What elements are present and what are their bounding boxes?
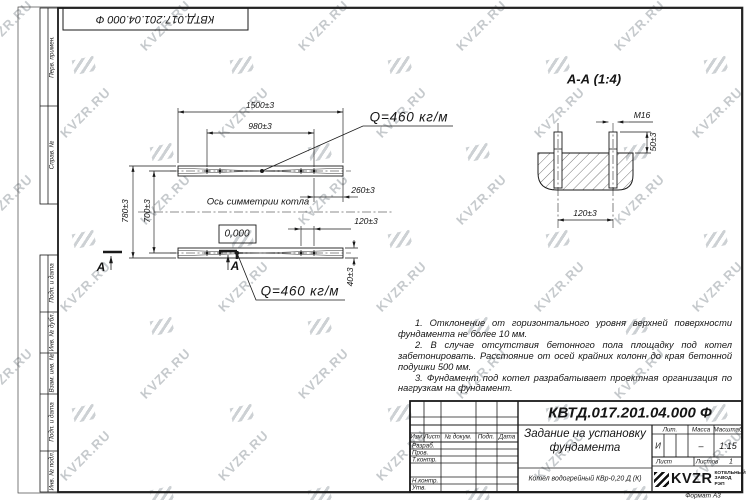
margin-label-podp-data-1: Подп. и дата <box>49 263 56 302</box>
col-header-podp: Подп. <box>478 434 494 441</box>
dimension-label-40: 40±3 <box>345 268 355 287</box>
dimension-label-120-section: 120±3 <box>573 208 597 218</box>
note-1: 1. Отклонение от горизонтального уровня … <box>398 318 732 340</box>
col-header-doc: № докум. <box>444 434 471 441</box>
title-block-doc-number: КВТД.017.201.04.000 Ф <box>548 405 711 422</box>
bolt-thread-label: М16 <box>634 110 651 120</box>
kvzr-logo-subtext: КОТЕЛЬНЫЙ ЗАВОД РЭП <box>714 471 742 487</box>
note-3: 3. Фундамент под котел разрабатывает про… <box>398 373 732 395</box>
dimension-label-980: 980±3 <box>248 121 272 131</box>
drawing-notes: 1. Отклонение от горизонтального уровня … <box>398 318 732 394</box>
dimension-label-50: 50±3 <box>648 133 658 152</box>
dimension-label-780: 780±3 <box>120 199 130 223</box>
scale-label: Масштаб <box>714 426 743 433</box>
section-letter-right: А <box>231 259 240 273</box>
mass-label: Масса <box>692 426 710 433</box>
level-mark-value: 0,000 <box>224 229 249 240</box>
sheets-value: 1 <box>729 458 733 465</box>
lit-value: И <box>655 441 661 450</box>
title-block-product: Котел водогрейный КВр-0,20 Д (К) <box>529 476 642 483</box>
dimension-label-700: 700±3 <box>142 199 152 223</box>
scale-value: 1:15 <box>719 441 737 451</box>
lit-label: Лит. <box>663 426 678 433</box>
drawing-sheet: KVZR.RUKVZR.RUKVZR.RUKVZR.RUKVZR.RUKVZR.… <box>0 0 750 500</box>
kvzr-logo-mark-icon <box>654 472 669 487</box>
row-label-razrab: Разраб. <box>412 442 434 449</box>
doc-number-top: КВТД.017.201.04.000 Ф <box>96 13 215 25</box>
sheets-label: Листов <box>696 458 719 465</box>
note-2: 2. В случае отсутствия бетонного пола пл… <box>398 340 732 373</box>
col-header-data: Дата <box>499 434 515 441</box>
row-label-prov: Пров. <box>412 449 428 456</box>
dimension-label-120-plan: 120±3 <box>354 216 378 226</box>
load-label-top: Q=460 кг/м <box>370 110 449 125</box>
row-label-utv: Утв. <box>412 484 426 491</box>
margin-label-vzam-inv: Взам. инв. № <box>49 354 56 393</box>
col-header-izm: Изм. <box>410 434 423 441</box>
format-label: Формат А3 <box>685 493 721 500</box>
symmetry-axis-label: Ось симметрии котла <box>207 197 309 208</box>
kvzr-logo-text: KVZR <box>671 471 712 487</box>
col-header-list: Лист <box>424 434 440 441</box>
mass-value: – <box>698 441 703 451</box>
margin-label-sprav-n: Справ. № <box>49 141 56 170</box>
dimension-label-1500: 1500±3 <box>246 100 274 110</box>
title-block-document-title: Задание на установку фундамента <box>520 428 650 455</box>
load-label-bottom: Q=460 кг/м <box>261 284 340 299</box>
sheet-label: Лист <box>656 458 672 465</box>
margin-label-podp-data-2: Подп. и дата <box>49 402 56 441</box>
margin-label-perv-primen: Перв. примен. <box>49 36 56 78</box>
margin-label-inv-dubl: Инв. № дубл. <box>49 313 56 352</box>
dimension-label-260: 260±3 <box>351 185 375 195</box>
section-letter-left: А <box>97 260 106 274</box>
section-title: А-А (1:4) <box>567 72 621 87</box>
margin-label-inv-podl: Инв. № подл. <box>49 451 56 490</box>
kvzr-logo: KVZR КОТЕЛЬНЫЙ ЗАВОД РЭП <box>654 467 741 491</box>
row-label-nkontr: Н.контр. <box>412 477 438 484</box>
row-label-tkontr: Т.контр. <box>412 456 437 463</box>
